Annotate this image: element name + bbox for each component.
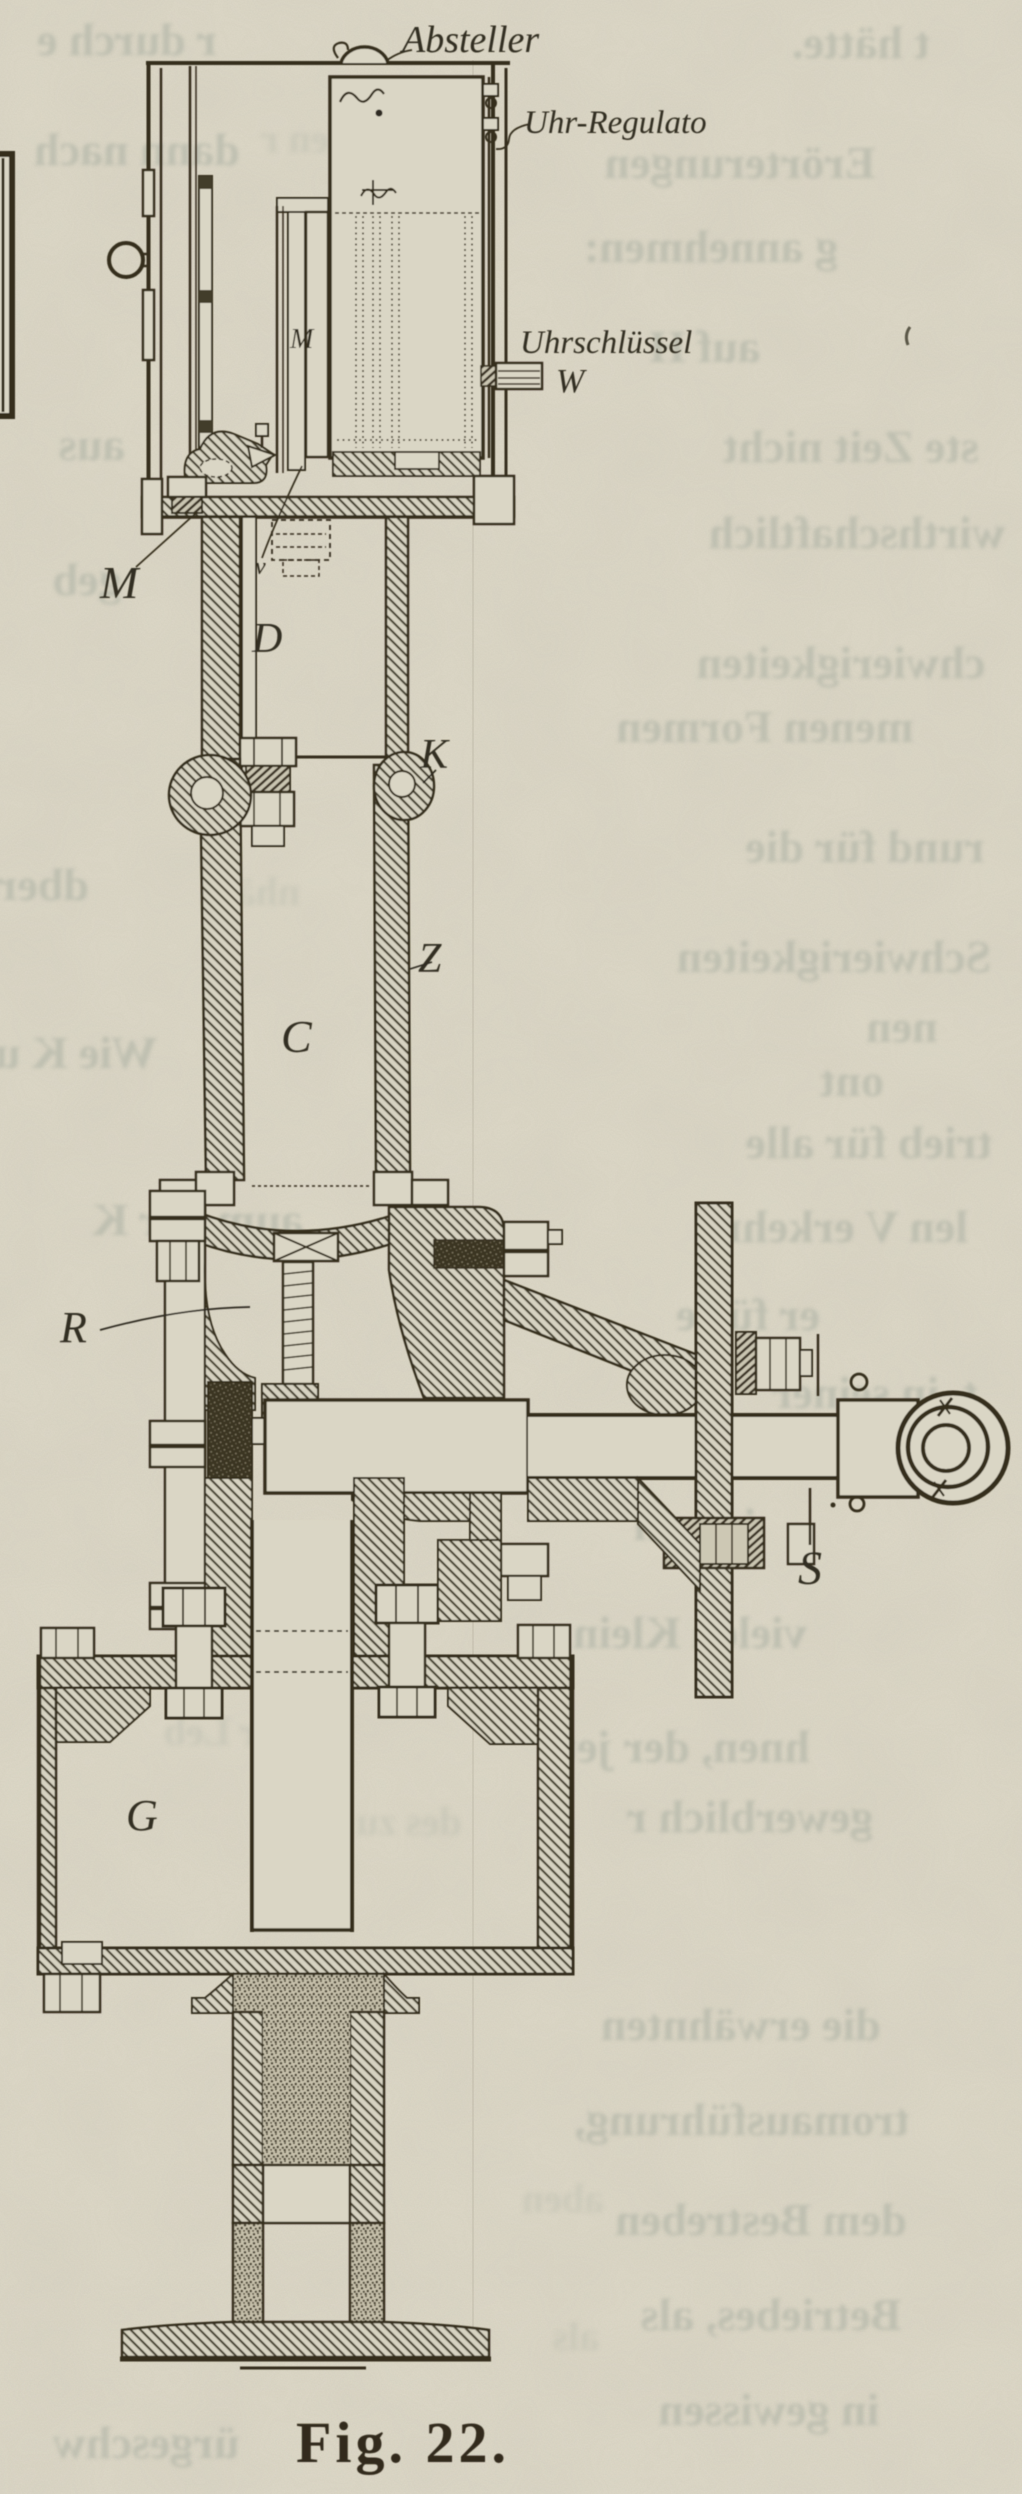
svg-text:wirthschaftlich: wirthschaftlich	[709, 507, 1005, 558]
svg-text:C: C	[281, 1011, 313, 1062]
svg-text:M: M	[99, 557, 141, 608]
svg-text:Wie K u: Wie K u	[0, 1027, 157, 1078]
svg-text:Schwierigkeiten: Schwierigkeiten	[677, 931, 991, 982]
svg-text:R: R	[59, 1303, 87, 1352]
svg-text:in gewissen: in gewissen	[658, 2384, 879, 2435]
svg-text:dem Bestreben: dem Bestreben	[615, 2194, 907, 2245]
svg-text:Erörterungen: Erörterungen	[605, 137, 876, 188]
svg-text:dann nach: dann nach	[34, 124, 240, 175]
svg-text:t hätte.: t hätte.	[792, 17, 930, 68]
svg-text:gewerblich r: gewerblich r	[627, 1791, 874, 1842]
svg-text:nen: nen	[866, 1001, 938, 1052]
svg-text:Betriebes, als: Betriebes, als	[641, 2289, 902, 2340]
svg-text:aus: aus	[59, 419, 125, 470]
svg-text:G: G	[126, 1791, 158, 1840]
svg-text:die erwähnten: die erwähnten	[601, 1999, 881, 2050]
svg-text:len V erkehrs: len V erkehrs	[704, 1201, 968, 1252]
svg-text:ste Zeit nicht: ste Zeit nicht	[723, 421, 979, 472]
svg-text:Absteller: Absteller	[399, 19, 539, 61]
svg-text:Uhrschlüssel: Uhrschlüssel	[520, 325, 692, 361]
svg-text:nhä: nhä	[236, 869, 301, 914]
svg-text:dber: dber	[0, 859, 89, 910]
svg-text:aben: aben	[522, 2176, 604, 2221]
svg-text:D: D	[251, 616, 282, 662]
svg-text:Fig. 22.: Fig. 22.	[296, 2410, 510, 2475]
svg-text:W: W	[556, 363, 587, 400]
svg-text:S: S	[798, 1542, 822, 1595]
svg-text:r durch e: r durch e	[37, 14, 217, 65]
svg-text:tromausführung,: tromausführung,	[574, 2094, 909, 2145]
svg-text:menen Formen: menen Formen	[616, 701, 914, 752]
svg-text:Uhr-Regulato: Uhr-Regulato	[524, 105, 707, 141]
svg-text:ürgeschw: ürgeschw	[53, 2417, 240, 2468]
svg-text:vielen Klein: vielen Klein	[573, 1607, 807, 1658]
svg-text:trieb für alle: trieb für alle	[746, 1117, 993, 1168]
svg-text:ont: ont	[819, 1055, 884, 1106]
svg-text:rund für die: rund für die	[745, 821, 984, 872]
svg-text:als: als	[553, 2314, 600, 2359]
svg-text:M: M	[289, 324, 315, 355]
svg-text:Z: Z	[418, 936, 442, 982]
svg-text:g annehmen:: g annehmen:	[584, 221, 838, 272]
svg-text:chwierigkeiten: chwierigkeiten	[697, 637, 986, 688]
svg-text:hnen, der jet: hnen, der jet	[561, 1721, 810, 1772]
svg-text:v: v	[255, 554, 266, 580]
